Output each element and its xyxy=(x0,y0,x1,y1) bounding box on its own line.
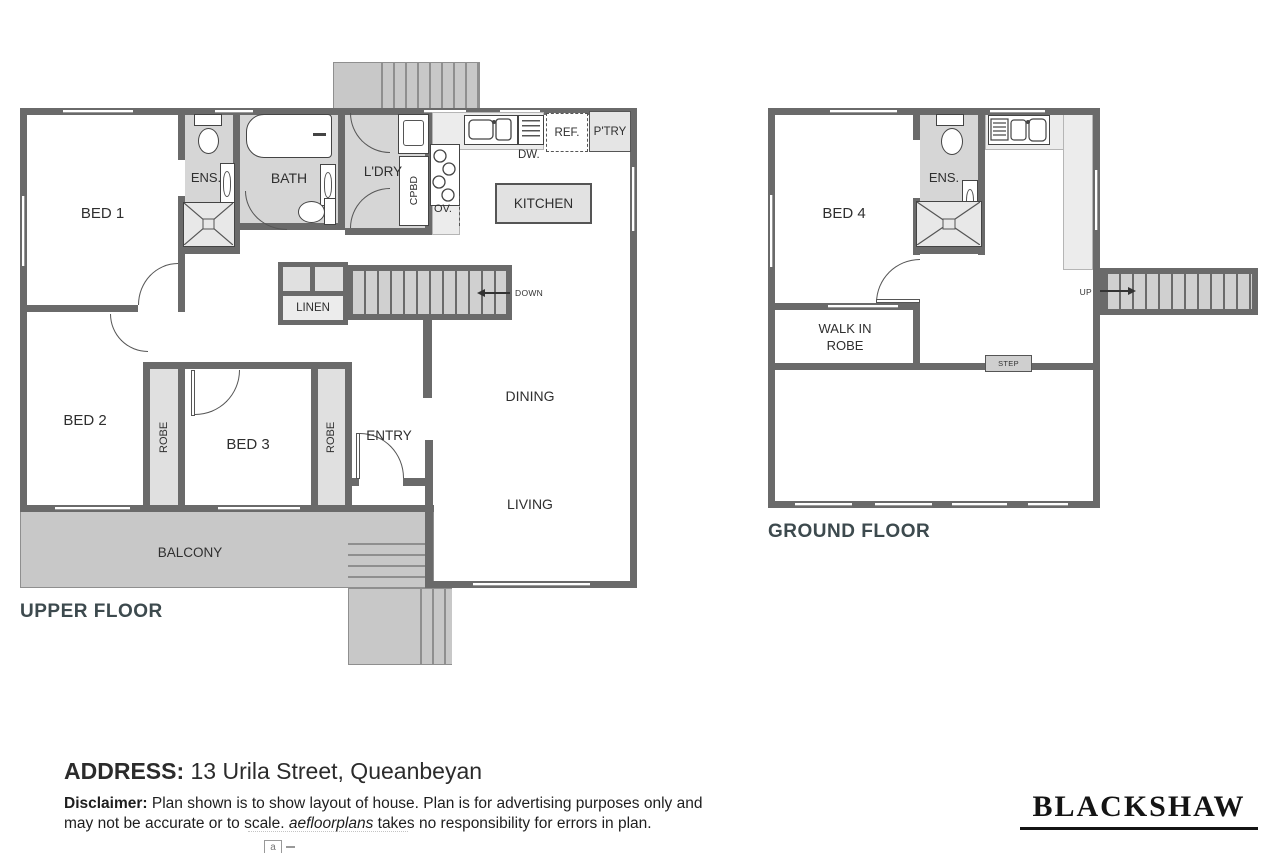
door-arc-bed4 xyxy=(876,259,920,303)
bath-label: BATH xyxy=(240,170,338,186)
up-arrow xyxy=(1100,290,1128,292)
wall xyxy=(178,247,240,254)
door-arc-bed3 xyxy=(195,370,240,415)
oven-label: OV. xyxy=(434,203,452,215)
window xyxy=(795,501,852,508)
wall xyxy=(768,108,1100,115)
laundry-tub-icon xyxy=(398,114,429,154)
shower-icon xyxy=(916,201,982,247)
laundry-bench-icon xyxy=(988,115,1050,145)
linen-cupboard xyxy=(315,267,343,291)
down-arrow xyxy=(484,292,510,294)
up-label: UP xyxy=(1062,287,1092,297)
toilet-icon xyxy=(324,198,336,225)
window xyxy=(828,303,898,310)
ground-floor-title: GROUND FLOOR xyxy=(768,521,930,543)
pantry: P'TRY xyxy=(589,111,631,152)
toilet-icon xyxy=(194,114,222,126)
wall xyxy=(178,369,185,505)
ptry-label: P'TRY xyxy=(594,126,627,138)
aefloorplans-logo-fragment: a xyxy=(264,840,282,853)
bed3-label: BED 3 xyxy=(185,436,311,453)
disclaimer-text2: takes no responsibility for errors in pl… xyxy=(373,815,651,832)
kitchen-label: KITCHEN xyxy=(514,196,573,211)
entry-label: ENTRY xyxy=(353,428,425,443)
ens-label: ENS. xyxy=(181,170,231,185)
window xyxy=(830,108,897,115)
disclaimer: Disclaimer: Plan shown is to show layout… xyxy=(64,794,704,834)
step-label: STEP xyxy=(998,359,1019,368)
address-label: ADDRESS: xyxy=(64,758,184,784)
address-value: 13 Urila Street, Queanbeyan xyxy=(184,758,482,784)
balcony-label: BALCONY xyxy=(60,545,320,560)
fridge-space: REF. xyxy=(546,113,588,152)
window xyxy=(875,501,932,508)
upper-floor-title: UPPER FLOOR xyxy=(20,601,163,623)
toilet-icon xyxy=(298,201,325,223)
wall xyxy=(345,369,352,505)
kitchen-sink-icon xyxy=(464,115,518,145)
step-box: STEP xyxy=(985,355,1032,372)
door-opening xyxy=(913,140,920,198)
cpbd-label: CPBD xyxy=(408,176,420,205)
walk-in-robe-label: WALK IN ROBE xyxy=(775,320,915,354)
logo-fragment-line xyxy=(248,831,408,832)
entry-landing-steps xyxy=(420,589,452,664)
balcony-steps xyxy=(348,543,426,588)
dining-label: DINING xyxy=(480,388,580,404)
bed4-label: BED 4 xyxy=(775,205,913,222)
wall xyxy=(913,247,985,254)
shower-icon xyxy=(183,202,235,247)
wall xyxy=(20,305,138,312)
wall xyxy=(425,440,433,588)
down-label: DOWN xyxy=(515,288,543,298)
kitchen-island: KITCHEN xyxy=(495,183,592,224)
dw-label: DW. xyxy=(518,149,540,161)
bench-counter xyxy=(1063,112,1093,270)
up-arrowhead xyxy=(1128,287,1136,295)
living-label: LIVING xyxy=(480,496,580,512)
bed1-label: BED 1 xyxy=(27,205,178,222)
window xyxy=(218,505,300,512)
window xyxy=(768,195,775,267)
window xyxy=(952,501,1007,508)
wall xyxy=(768,363,1100,370)
down-arrowhead xyxy=(477,289,485,297)
window xyxy=(55,505,130,512)
window xyxy=(1028,501,1068,508)
cooktop-icon xyxy=(430,144,460,206)
logo-fragment-dash xyxy=(286,846,295,848)
ldry-label: L'DRY xyxy=(343,164,423,179)
wir-line1: WALK IN xyxy=(819,321,872,336)
window xyxy=(630,167,637,231)
wall xyxy=(403,478,433,486)
blackshaw-logo: BLACKSHAW xyxy=(1020,790,1258,830)
wall xyxy=(345,228,432,235)
wall xyxy=(143,369,150,505)
door-leaf-bed4 xyxy=(876,299,920,303)
linen-label: LINEN xyxy=(296,302,330,314)
disclaimer-brand: aefloorplans xyxy=(289,815,373,832)
oven-dash xyxy=(459,196,460,226)
wall xyxy=(311,369,318,505)
dishwasher-icon xyxy=(518,115,544,145)
ref-label: REF. xyxy=(555,127,580,139)
window xyxy=(990,108,1045,115)
robe-left-label: ROBE xyxy=(150,369,178,505)
toilet-icon xyxy=(936,114,964,126)
window xyxy=(1093,170,1100,230)
wall xyxy=(143,362,352,369)
toilet-icon xyxy=(941,128,963,155)
wall xyxy=(423,320,432,398)
toilet-icon xyxy=(198,128,219,154)
disclaimer-label: Disclaimer: xyxy=(64,795,148,812)
robe-right-label: ROBE xyxy=(318,369,345,505)
door-arc-bed2 xyxy=(110,314,148,352)
window xyxy=(63,108,133,115)
wall xyxy=(1093,108,1100,508)
address-line: ADDRESS: 13 Urila Street, Queanbeyan xyxy=(64,758,482,785)
floorplan-canvas: LINEN DOWN ENS. BATH CPBD L'DRY OV. DW. … xyxy=(0,0,1280,853)
linen-cupboard xyxy=(283,267,310,291)
bed2-label: BED 2 xyxy=(27,412,143,429)
upper-deck-stairs xyxy=(381,63,479,111)
window xyxy=(20,196,27,266)
door-arc-bed1 xyxy=(138,263,178,305)
window xyxy=(473,581,590,588)
wir-line2: ROBE xyxy=(827,338,864,353)
bathtub-icon xyxy=(246,114,332,158)
ens2-label: ENS. xyxy=(914,170,974,185)
